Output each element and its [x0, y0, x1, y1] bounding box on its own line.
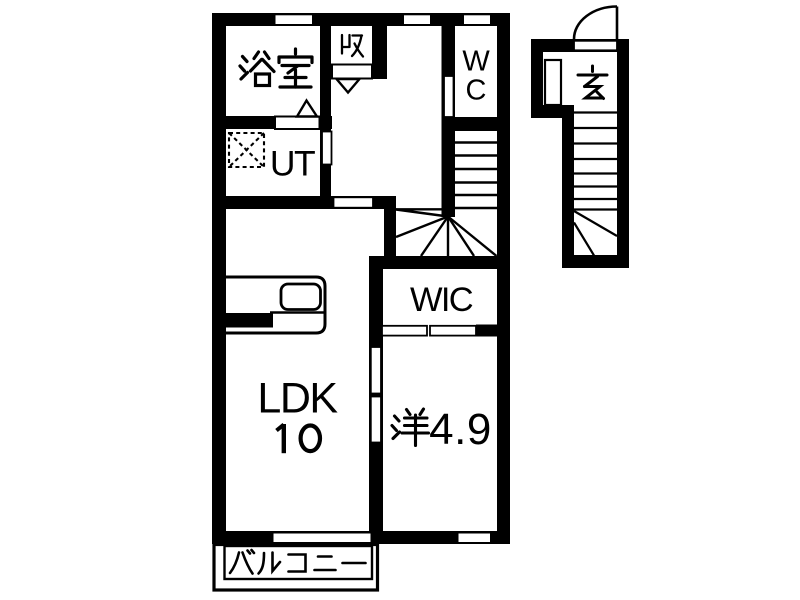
svg-text:LDK: LDK [257, 375, 338, 423]
svg-text:C: C [466, 75, 487, 107]
svg-text:4.9: 4.9 [429, 405, 492, 454]
svg-text:UT: UT [270, 144, 315, 184]
svg-text:W: W [462, 46, 490, 78]
svg-text:WIC: WIC [410, 281, 473, 319]
